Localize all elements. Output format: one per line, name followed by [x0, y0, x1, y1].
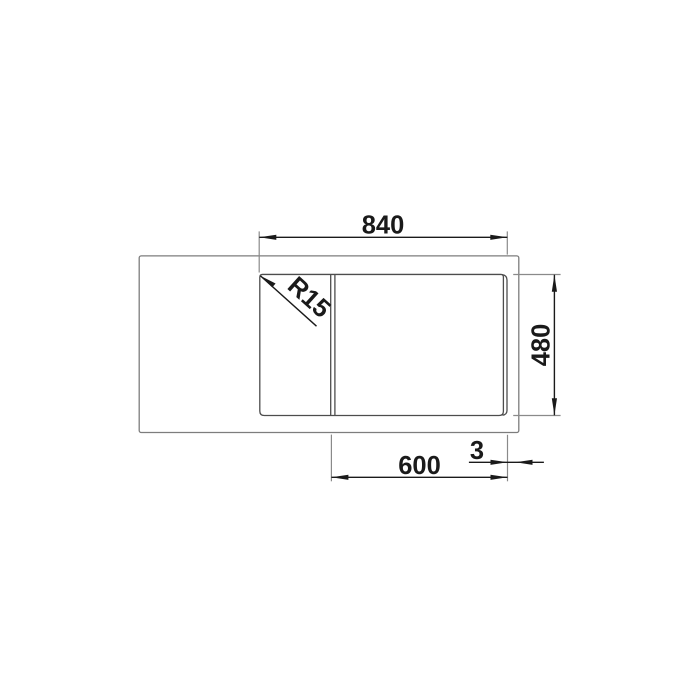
svg-text:480: 480 — [528, 324, 556, 367]
svg-text:3: 3 — [470, 437, 484, 465]
svg-text:840: 840 — [362, 212, 405, 240]
svg-text:600: 600 — [398, 452, 441, 480]
svg-text:R15: R15 — [282, 271, 336, 323]
